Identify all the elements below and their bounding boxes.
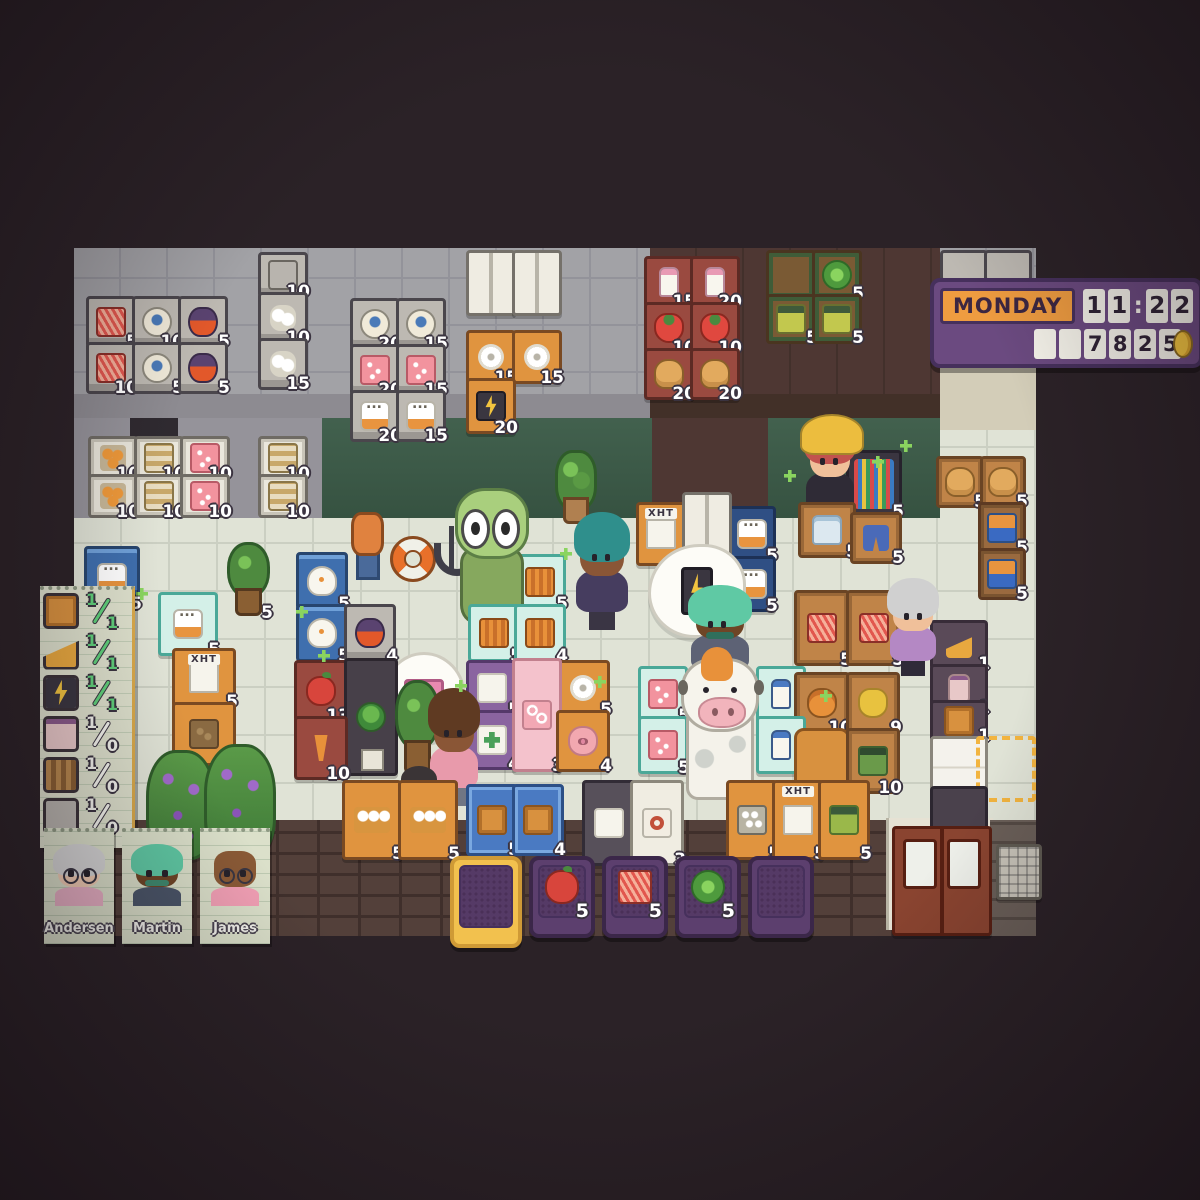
- double-doors[interactable]: [892, 826, 992, 936]
- stock-count: 5: [261, 603, 273, 623]
- sparkle-icon: [820, 690, 832, 702]
- poster-icon: [642, 808, 672, 838]
- mustard-pot-icon: [858, 688, 888, 718]
- bread-icon: [945, 467, 975, 497]
- meat-icon: [648, 679, 678, 709]
- stand-magazines[interactable]: [582, 780, 636, 866]
- money-display: 7825: [1034, 329, 1181, 359]
- stock-fraction: 11: [84, 634, 120, 670]
- bust-statue[interactable]: [344, 512, 386, 580]
- crate-lettuce[interactable]: 5: [812, 250, 862, 300]
- lettuce-icon: [822, 260, 852, 290]
- cow-eyes: [703, 687, 709, 693]
- digit-cell: 2: [1146, 289, 1168, 323]
- legs: [901, 659, 924, 676]
- compost-icon: [189, 719, 219, 749]
- fridge-fillets[interactable]: 5: [468, 604, 520, 662]
- sign-label: XHT: [782, 786, 814, 797]
- shelf-bread[interactable]: 20: [690, 348, 740, 400]
- fillet-icon: [479, 618, 509, 648]
- sign-label: XHT: [645, 508, 677, 519]
- shelf-strawberry[interactable]: 10: [690, 302, 740, 354]
- milk-stand-icon: [354, 807, 390, 833]
- vending-claw[interactable]: 20: [350, 298, 400, 350]
- cow-snout: [698, 697, 745, 728]
- stock-count: 10: [208, 502, 232, 522]
- meat-icon: [648, 730, 678, 760]
- vending-snack[interactable]: 5: [728, 506, 776, 562]
- apple-icon: [545, 870, 579, 904]
- kiosk-toilet-paper[interactable]: 15: [466, 330, 516, 384]
- stand-eggs[interactable]: 5: [726, 780, 778, 860]
- stock-count: 5: [766, 596, 778, 616]
- fridge-bread-display[interactable]: 5: [158, 592, 218, 656]
- shelf-milk[interactable]: 15: [644, 256, 694, 308]
- battery-icon: [476, 391, 506, 421]
- clock-display: 11:22: [1083, 289, 1193, 323]
- digit-cell: [1034, 329, 1056, 359]
- stock-count: 5: [218, 378, 230, 398]
- lettuce-icon: [691, 870, 725, 904]
- stock-fraction: 11: [84, 593, 120, 629]
- item-hotbar: 555: [450, 856, 814, 948]
- jar-green-icon: [858, 746, 888, 776]
- fridge-fillets[interactable]: 4: [514, 604, 566, 662]
- body: [890, 626, 936, 661]
- digit-cell: 1: [1108, 289, 1130, 323]
- checklist-item-battery[interactable]: 11: [40, 672, 132, 713]
- lava-lamp-icon: [188, 307, 218, 337]
- apple-icon: [306, 676, 336, 706]
- crate-boxes[interactable]: 4: [512, 784, 564, 856]
- staff-name: James: [200, 921, 270, 936]
- crate-boxes[interactable]: 5: [466, 784, 518, 856]
- digit-cell: 2: [1171, 289, 1193, 323]
- cheese-icon: [43, 634, 79, 670]
- eggs-icon: [737, 805, 767, 835]
- stand-pickles[interactable]: 5: [818, 780, 870, 860]
- sparkle-icon: [318, 650, 330, 662]
- stand-pig-feed[interactable]: 4: [556, 710, 610, 772]
- stock-count: 20: [494, 418, 518, 438]
- kiosk-newspaper[interactable]: XHT5: [172, 648, 236, 708]
- crate-mustard[interactable]: 9: [846, 672, 900, 734]
- vending-bacon[interactable]: 10: [86, 342, 136, 394]
- digit-cell: [1059, 329, 1081, 359]
- hard-hat: [800, 414, 864, 455]
- stand-newspaper[interactable]: XHT5: [772, 780, 824, 860]
- vending-bread[interactable]: 20: [350, 390, 400, 442]
- bread-bubble-icon: [737, 519, 767, 549]
- staff-portrait: [209, 844, 261, 906]
- zombie-eye: [492, 509, 520, 549]
- stock-count: 5: [852, 328, 864, 348]
- blue-box-icon: [987, 559, 1017, 589]
- shelf-milk[interactable]: 20: [690, 256, 740, 308]
- stand-apples[interactable]: 13: [294, 660, 348, 722]
- vending-claw[interactable]: 15: [396, 298, 446, 350]
- body: [576, 570, 627, 612]
- fillet-icon: [525, 618, 555, 648]
- hair: [574, 512, 630, 562]
- bottle-pink-icon: [43, 716, 79, 752]
- vending-claw[interactable]: 10: [132, 296, 182, 348]
- stand-milk-bottles[interactable]: 5: [398, 780, 458, 860]
- stock-fraction: 10: [84, 716, 120, 752]
- claw-ring-icon: [142, 353, 172, 383]
- staff-card-andersen[interactable]: Andersen: [44, 828, 114, 944]
- cabinet-goods[interactable]: 5: [978, 548, 1026, 600]
- hotbar-empty-slot[interactable]: [748, 856, 814, 938]
- freezer-packs[interactable]: 10: [134, 474, 184, 518]
- cheese-icon: [946, 632, 972, 658]
- vending-sheep[interactable]: 10: [258, 292, 308, 344]
- newspaper-icon: [783, 805, 813, 835]
- box-tan-icon: [523, 805, 553, 835]
- sparkle-icon: [594, 676, 606, 688]
- vending-meat[interactable]: 20: [350, 344, 400, 396]
- milk-blue-icon: [771, 730, 791, 760]
- stock-count: 10: [878, 778, 902, 798]
- staff-cards: AndersenMartinJames: [44, 828, 270, 944]
- crate-pants[interactable]: 5: [850, 512, 902, 564]
- stock-count: 15: [540, 368, 564, 388]
- staff-name: Andersen: [44, 921, 114, 936]
- battery-icon: [43, 675, 79, 711]
- sparkle-icon: [560, 548, 572, 560]
- pants-icon: [863, 525, 889, 551]
- vending-claw[interactable]: 5: [132, 342, 182, 394]
- stand-carrots[interactable]: 10: [294, 716, 348, 780]
- lava-lamp-icon: [188, 353, 218, 383]
- shower-stall[interactable]: [512, 250, 562, 316]
- coin-icon: [1173, 330, 1193, 358]
- stock-count: 5: [860, 844, 872, 864]
- toilet-paper-icon: [524, 344, 550, 370]
- day-label: MONDAY: [940, 288, 1075, 324]
- sparkle-icon: [872, 456, 884, 468]
- sparkle-icon: [296, 606, 308, 618]
- checklist-item-bottle[interactable]: 10: [40, 713, 132, 754]
- sparkle-icon: [784, 470, 796, 482]
- shelf-bread[interactable]: 20: [644, 348, 694, 400]
- toilet-paper-icon: [478, 344, 504, 370]
- digit-cell: 1: [1083, 289, 1105, 323]
- hud-panel: MONDAY 11:22 7825: [930, 278, 1200, 368]
- water-bottle-icon: [812, 515, 842, 545]
- eyes: [708, 621, 713, 628]
- cow-hay-tuft: [701, 647, 734, 681]
- freezer-oranges[interactable]: 10: [88, 474, 138, 518]
- jar-yellow-icon: [776, 304, 806, 334]
- vending-lava-lamp[interactable]: 5: [178, 342, 228, 394]
- bandages-icon: [522, 700, 552, 730]
- newspaper-icon: [189, 663, 219, 693]
- zombie-statue[interactable]: [446, 488, 532, 618]
- staff-portrait: [53, 844, 105, 906]
- stand-poster[interactable]: 3: [630, 780, 684, 866]
- stock-count: 20: [718, 384, 742, 404]
- eyes: [904, 613, 909, 620]
- stock-count: 15: [286, 374, 310, 394]
- pig-feed-icon: [568, 726, 598, 756]
- shower-stall[interactable]: [466, 250, 516, 316]
- crate-jars[interactable]: 5: [812, 294, 862, 344]
- cow[interactable]: [676, 658, 758, 800]
- vending-bacon[interactable]: 5: [86, 296, 136, 348]
- staff-name: Martin: [122, 921, 192, 936]
- stock-count: 5: [892, 548, 904, 568]
- pickle-jar-icon: [829, 805, 859, 835]
- plant-icon: [356, 702, 386, 732]
- crate-bread[interactable]: 5: [936, 456, 984, 508]
- zombie-eye: [461, 509, 489, 549]
- shop-scene: 5105105510101510101010101010102015201520…: [0, 0, 1200, 1200]
- mustache: [706, 632, 735, 639]
- stock-count: 10: [286, 502, 310, 522]
- chicken-icon: [307, 618, 337, 648]
- crate-bread[interactable]: 5: [980, 456, 1026, 508]
- cabinet-goods[interactable]: 5: [978, 502, 1026, 554]
- freezer-meat[interactable]: 10: [180, 474, 230, 518]
- vending-sheep[interactable]: 15: [258, 338, 308, 390]
- bread-bubble-icon: [173, 609, 203, 639]
- crate-jars[interactable]: 5: [766, 294, 816, 344]
- hair: [887, 578, 938, 619]
- vending-bread[interactable]: 15: [396, 390, 446, 442]
- game-screen: 5105105510101510101010101010102015201520…: [0, 0, 1200, 1200]
- sign-label: XHT: [188, 654, 220, 665]
- milk-blue-icon: [771, 679, 791, 709]
- eyes: [592, 554, 597, 561]
- hotbar-lettuce-slot[interactable]: 5: [675, 856, 741, 938]
- checklist-item-logs[interactable]: 10: [40, 754, 132, 795]
- sparkle-icon: [136, 588, 148, 600]
- potted-tree[interactable]: 5: [224, 542, 268, 616]
- checklist-item-box[interactable]: 11: [40, 590, 132, 631]
- med-pad-icon: [594, 808, 624, 838]
- carrot-icon: [308, 735, 334, 761]
- stock-fraction: 10: [84, 757, 120, 793]
- stock-count: 4: [600, 756, 612, 776]
- digit-cell: 7: [1084, 329, 1106, 359]
- sparkle-icon: [455, 680, 467, 692]
- staff-portrait: [131, 844, 183, 906]
- customer-elderly[interactable]: [884, 578, 942, 676]
- kiosk-toilet-paper[interactable]: 15: [512, 330, 562, 384]
- bread-icon: [988, 467, 1018, 497]
- stand-toilet-paper[interactable]: 5: [556, 660, 610, 716]
- sparkle-icon: [900, 440, 912, 452]
- customer-teal-hair[interactable]: [570, 512, 634, 630]
- crate-water[interactable]: 5: [798, 502, 856, 558]
- crate-bacon[interactable]: 5: [794, 590, 850, 666]
- stock-count: 5: [1016, 584, 1028, 604]
- plant-display[interactable]: [344, 658, 398, 776]
- shelf-strawberry[interactable]: 10: [644, 302, 694, 354]
- hotbar-apple-slot[interactable]: 5: [529, 856, 595, 938]
- crate-empty[interactable]: [766, 250, 816, 300]
- clock-colon: :: [1133, 289, 1143, 323]
- digit-cell: 2: [1134, 329, 1156, 359]
- blue-box-icon: [987, 513, 1017, 543]
- slot-well: [757, 865, 805, 918]
- jar-yellow-icon: [822, 304, 852, 334]
- freezer-packs[interactable]: 10: [258, 474, 308, 518]
- slot-well: [459, 865, 513, 928]
- milk-stand-icon: [410, 807, 446, 833]
- bacon-pack-icon: [96, 307, 126, 337]
- chicken-icon: [307, 566, 337, 596]
- stock-count: 15: [424, 426, 448, 446]
- box-tan-icon: [944, 706, 974, 736]
- checklist-item-cheese[interactable]: 11: [40, 631, 132, 672]
- stand-milk-bottles[interactable]: 5: [342, 780, 402, 860]
- legs: [589, 610, 615, 630]
- vending-meat[interactable]: 15: [396, 344, 446, 396]
- basket-rack[interactable]: [996, 844, 1042, 900]
- hotbar-meat-pack-slot[interactable]: 5: [602, 856, 668, 938]
- box-tan-icon: [477, 805, 507, 835]
- hotbar-selected-empty-slot[interactable]: [450, 856, 522, 948]
- lava-lamp-icon: [355, 618, 385, 648]
- staff-card-james[interactable]: James: [200, 828, 270, 944]
- box-tan-icon: [43, 593, 79, 629]
- bacon-pack-icon: [807, 613, 837, 643]
- hair: [688, 585, 751, 627]
- fridge-bandages[interactable]: 3: [512, 658, 562, 772]
- kiosk-battery[interactable]: 20: [466, 378, 516, 434]
- eyes: [820, 458, 825, 465]
- stock-fraction: 11: [84, 675, 120, 711]
- vending-lava-lamp[interactable]: 4: [344, 604, 396, 662]
- staff-card-martin[interactable]: Martin: [122, 828, 192, 944]
- logs-icon: [43, 757, 79, 793]
- hair: [428, 688, 481, 738]
- digit-cell: 8: [1109, 329, 1131, 359]
- restock-checklist: 111111101010: [40, 586, 135, 848]
- toilet-paper-icon: [570, 675, 596, 701]
- fridge-chicken[interactable]: 5: [296, 552, 348, 610]
- vending-lava-lamp[interactable]: 5: [178, 296, 228, 348]
- meat-pack-icon: [618, 870, 652, 904]
- newspaper-icon: [646, 519, 676, 549]
